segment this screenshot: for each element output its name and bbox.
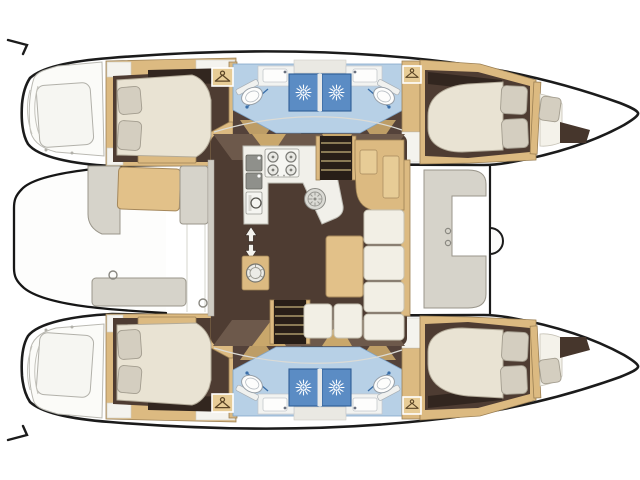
cockpit-bench-port xyxy=(88,166,120,234)
dinette-table xyxy=(326,236,363,297)
sofa-cushion xyxy=(334,304,362,338)
washing-machine-icon xyxy=(242,256,269,290)
sofa-cushion xyxy=(364,210,404,244)
sofa-cushion xyxy=(364,314,404,340)
sofa-cushion xyxy=(364,246,404,280)
stove-burners-icon xyxy=(265,149,299,177)
foredeck xyxy=(490,166,503,314)
deck-fitting xyxy=(199,299,207,307)
wardrobe-starboard-aft xyxy=(212,394,233,412)
windlass-icon xyxy=(490,228,503,254)
wardrobe-port-forward xyxy=(403,66,421,83)
oven-icon xyxy=(246,192,262,214)
sofa-cushion xyxy=(364,282,404,312)
stairs-port xyxy=(316,136,356,180)
wardrobe-port-aft xyxy=(212,68,233,86)
round-sink-icon xyxy=(305,189,326,210)
forward-cockpit xyxy=(424,170,486,308)
saloon xyxy=(208,134,410,346)
cockpit-bench-aft xyxy=(92,278,186,306)
forward-bench xyxy=(424,170,486,308)
saloon-aft-wall xyxy=(208,160,214,316)
wardrobe-starboard-forward xyxy=(403,397,421,414)
cockpit-console xyxy=(180,166,208,224)
cockpit-cushion xyxy=(117,167,180,211)
sofa-cushion xyxy=(304,304,332,338)
catamaran-floor-plan xyxy=(0,0,640,480)
